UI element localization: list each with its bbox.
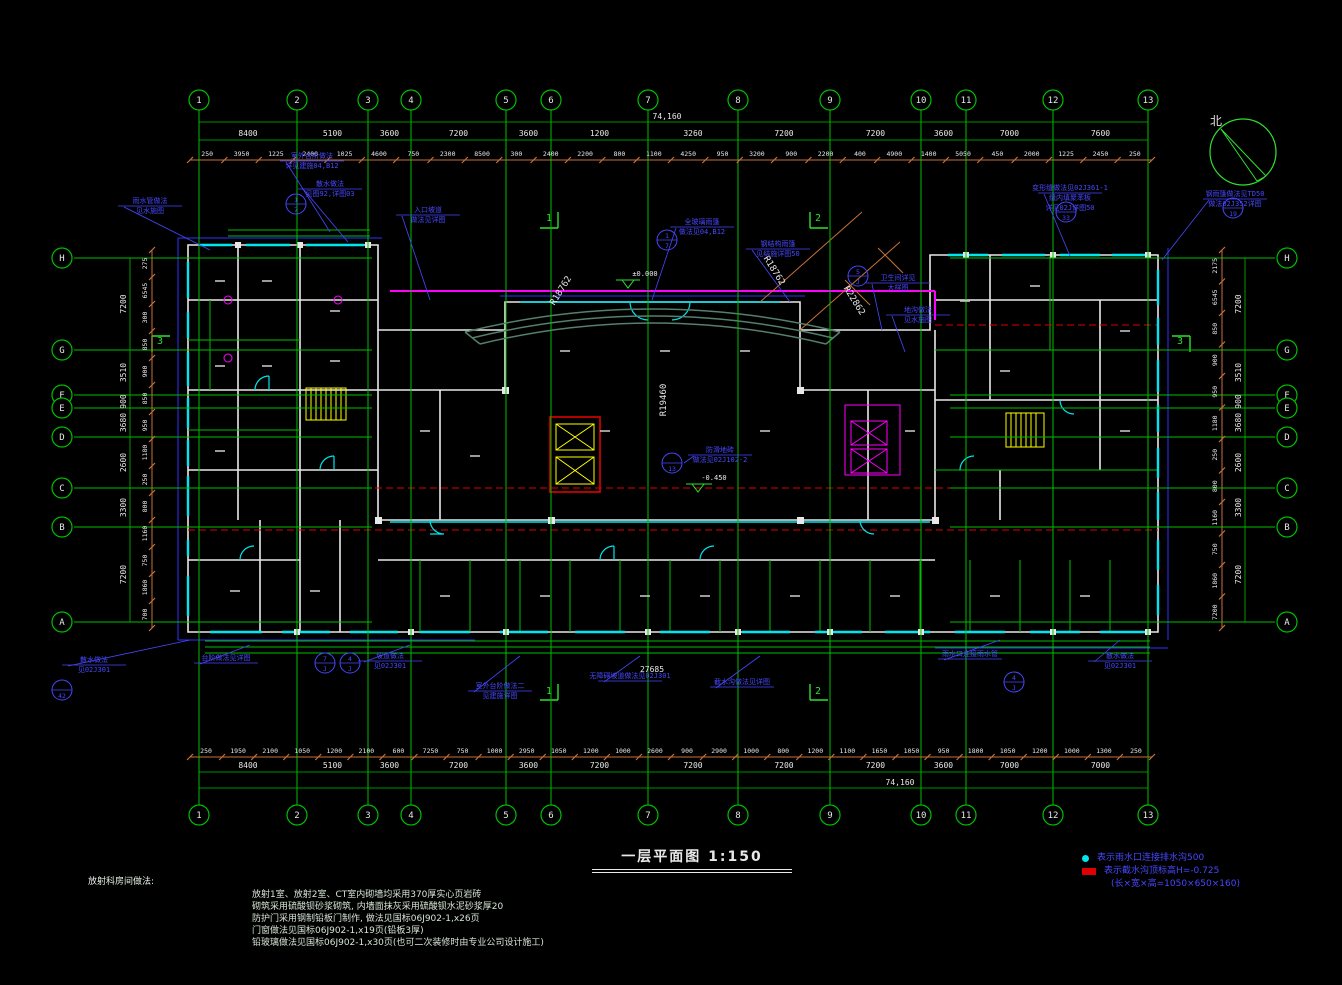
plan-text: 1 (546, 213, 552, 224)
axis-bubble-label: 9 (827, 96, 832, 106)
sub-dim: 900 (141, 366, 149, 378)
sub-dim: 2100 (262, 747, 278, 755)
axis-bubble-label: B (59, 523, 64, 533)
axis-bubble-label: 5 (503, 811, 508, 821)
sub-dim: 1200 (1032, 747, 1048, 755)
axis-bubble-label: G (1284, 346, 1289, 356)
dim-top: 8400 (238, 129, 257, 138)
dim-top: 7000 (1000, 129, 1019, 138)
partitions-layer (188, 230, 1158, 653)
dim-right: 3300 (1234, 498, 1243, 517)
callout-text: 卫生间详见 (881, 273, 916, 282)
plan-text: R19460 (659, 384, 669, 417)
detail-bubble-bottom: J (1012, 684, 1016, 692)
sub-dim: 4900 (886, 150, 902, 158)
dim-total-top: 74,160 (653, 112, 682, 121)
dim-left: 7200 (119, 565, 128, 584)
callout-text: 散水做法 (80, 655, 108, 664)
legend-item: 表示截水沟顶标高H=-0.725 (1082, 865, 1240, 878)
sub-dim: 750 (141, 555, 149, 567)
callout-text: 无障碍坡道做法见02J301 (589, 671, 670, 680)
callout-text: 钢结构雨篷 (761, 239, 796, 248)
dim-bottom: 7200 (449, 761, 468, 770)
dim-top: 7200 (774, 129, 793, 138)
plan-text: ±0.000 (632, 270, 657, 278)
sub-dim: 2100 (359, 747, 375, 755)
sub-dim: 2200 (818, 150, 834, 158)
plan-text: 3 (157, 336, 163, 347)
callout-text: 做法02J352详图 (1208, 199, 1261, 208)
sub-dim: 1000 (1064, 747, 1080, 755)
sub-dim: 3950 (234, 150, 250, 158)
sub-dim: 250 (1129, 150, 1141, 158)
sub-dim: 450 (992, 150, 1004, 158)
dim-left: 7200 (119, 294, 128, 313)
dim-top: 1200 (590, 129, 609, 138)
sub-dim: 1200 (583, 747, 599, 755)
columns-layer (235, 242, 1151, 635)
dim-left: 3680 (119, 413, 128, 432)
detail-bubble-top: 7 (323, 655, 327, 663)
sub-dim: 1200 (807, 747, 823, 755)
plan-text: 1 (546, 686, 552, 697)
dim-bottom: 7200 (683, 761, 702, 770)
sub-dim: 250 (200, 747, 212, 755)
axis-bubble-label: 2 (294, 811, 299, 821)
callout-text: 台阶做法见详图 (202, 653, 251, 662)
sub-dim: 1050 (904, 747, 920, 755)
sub-dim: 1025 (337, 150, 353, 158)
axis-bubble-label: A (59, 618, 65, 628)
callout-text: 做法见04,B12 (679, 227, 725, 236)
callout-text: 全玻璃雨篷 (685, 217, 720, 226)
sub-dim: 850 (141, 393, 149, 405)
fixtures-layer (224, 291, 935, 475)
sub-dim: 6545 (141, 283, 149, 299)
dim-bottom: 8400 (238, 761, 257, 770)
diagonal-dims-layer (760, 212, 903, 330)
sub-dim: 800 (1211, 480, 1219, 492)
sub-dim: 250 (141, 474, 149, 486)
sub-dim: 2450 (1093, 150, 1109, 158)
sub-dim: 2300 (440, 150, 456, 158)
sub-dim: 900 (681, 747, 693, 755)
axis-bubble-label: 7 (645, 96, 650, 106)
sub-dim: 2175 (1211, 258, 1219, 274)
sub-dim: 2600 (647, 747, 663, 755)
notes-heading: 放射科房间做法: (88, 876, 544, 888)
sub-dim: 7250 (423, 747, 439, 755)
axis-bubble-label: 6 (548, 96, 553, 106)
callout-text: 坡道做法 (376, 651, 404, 660)
callout-text: 室外台阶做法二 (476, 681, 525, 690)
sub-dim: 1000 (615, 747, 631, 755)
sub-dim: 250 (201, 150, 213, 158)
axis-bubble-label: 12 (1048, 96, 1059, 106)
detail-bubble-bottom: J (323, 665, 327, 673)
sub-dim: 1050 (1000, 747, 1016, 755)
sub-dim: 950 (141, 420, 149, 432)
axis-bubble-label: 8 (735, 811, 740, 821)
axis-bubble-label: 12 (1048, 811, 1059, 821)
callout-text: 见水施图 (136, 206, 164, 215)
plan-text: 2 (815, 686, 821, 697)
dim-top: 7600 (1091, 129, 1110, 138)
sub-dim: 600 (393, 747, 405, 755)
legend-text: 表示截水沟顶标高H=-0.725 (1104, 865, 1219, 878)
sub-dim: 4250 (680, 150, 696, 158)
axis-bubble-label: 13 (1143, 811, 1154, 821)
sub-dim: 2950 (519, 747, 535, 755)
dim-right: 7200 (1234, 565, 1243, 584)
axis-bubble-label: H (1284, 254, 1289, 264)
notes-lines: 放射1室、放射2室、CT室内砌墙均采用370厚实心页岩砖砌筑采用硫酸钡砂浆砌筑,… (88, 889, 544, 949)
callout-text: 钢雨篷做法见TD50 (1206, 189, 1265, 198)
dim-right: 2600 (1234, 453, 1243, 472)
callout-text: 散水做法 (1106, 651, 1134, 660)
axis-bubble-label: C (1284, 484, 1289, 494)
north-arrow: 北 (1210, 114, 1276, 185)
dim-bottom: 3600 (519, 761, 538, 770)
axis-bubble-label: 8 (735, 96, 740, 106)
sub-dim: 300 (141, 312, 149, 324)
legend-text2: (长×宽×高=1050×650×160) (1111, 878, 1240, 891)
sub-dim: 1860 (141, 580, 149, 596)
sub-dim: 900 (785, 150, 797, 158)
dim-bottom: 5100 (323, 761, 342, 770)
sub-dim: 750 (407, 150, 419, 158)
sub-dim: 4600 (371, 150, 387, 158)
dim-bottom: 7200 (866, 761, 885, 770)
sub-dim: 1100 (646, 150, 662, 158)
axis-bubble-label: E (59, 404, 64, 414)
sub-dim: 750 (1211, 543, 1219, 555)
callout-text: 见结施详图50 (756, 249, 799, 258)
sub-dim: 1225 (268, 150, 284, 158)
sub-dim: 1180 (141, 445, 149, 461)
callout-text: 详见建施04,B12 (285, 161, 338, 170)
dim-bottom: 7200 (774, 761, 793, 770)
windows-layer (188, 245, 1158, 632)
detail-bubble-top: 1 (665, 232, 669, 240)
axis-bubble-label: 11 (961, 96, 972, 106)
axis-bubble-label: 1 (196, 96, 201, 106)
sub-dim: 800 (614, 150, 626, 158)
callout-text: 变形缝做法见02J361-1 (1032, 183, 1108, 192)
sub-dim: 1200 (326, 747, 342, 755)
dim-top: 3600 (519, 129, 538, 138)
callout-text: 做法见详图 (411, 215, 446, 224)
axis-bubble-label: H (59, 254, 64, 264)
sub-dim: 250 (1211, 449, 1219, 461)
axis-bubble-label: 3 (365, 811, 370, 821)
detail-bubble-top: 5 (856, 268, 860, 276)
axis-bubble-label: 11 (961, 811, 972, 821)
detail-bubble-bottom: J (856, 278, 860, 286)
dim-top: 3600 (934, 129, 953, 138)
callout-text: 入口坡道 (414, 205, 442, 214)
legend-block: 表示雨水口连接排水沟500表示截水沟顶标高H=-0.725(长×宽×高=1050… (1082, 852, 1240, 891)
sub-dim: 750 (457, 747, 469, 755)
legend-symbol-circle (1082, 855, 1089, 862)
plan-text: R22862 (841, 285, 867, 318)
canopy-layer (465, 309, 840, 344)
sub-dim: 950 (717, 150, 729, 158)
callout-text: 见02J301 (1104, 662, 1136, 670)
axis-bubble-label: B (1284, 523, 1289, 533)
axis-bubble-label: 9 (827, 811, 832, 821)
detail-bubble-bottom: 33 (1062, 214, 1070, 222)
sub-dim: 2900 (711, 747, 727, 755)
axis-bubble-label: 4 (408, 811, 413, 821)
sub-dim: 3200 (749, 150, 765, 158)
notes-block: 放射科房间做法: 放射1室、放射2室、CT室内砌墙均采用370厚实心页岩砖砌筑采… (88, 876, 544, 949)
floorplan-drawing: 北 1122334455667788991010111112121313HHGG… (0, 0, 1342, 985)
notes-line: 防护门采用钢制铅板门制作, 做法见国标06J902-1,x26页 (252, 913, 544, 925)
legend-text: 表示雨水口连接排水沟500 (1097, 852, 1204, 865)
axis-bubble-label: 10 (916, 96, 927, 106)
sub-dim: 400 (854, 150, 866, 158)
callout-text: 见建施详图 (483, 691, 518, 700)
axis-bubble-label: 13 (1143, 96, 1154, 106)
detail-bubble-bottom: 7 (294, 206, 298, 214)
sub-dim: 2200 (577, 150, 593, 158)
axis-bubble-label: E (1284, 404, 1289, 414)
walls-layer (188, 245, 1158, 632)
cad-canvas: { "title": {"text": "一层平面图 1:150"}, "nor… (0, 0, 1342, 985)
sub-dim: 800 (777, 747, 789, 755)
legend-symbol-rect (1082, 868, 1096, 875)
dim-bottom: 7000 (1091, 761, 1110, 770)
sub-dim: 1050 (551, 747, 567, 755)
sub-dim: 1225 (1058, 150, 1074, 158)
sub-dim: 950 (938, 747, 950, 755)
sub-dim: 1100 (840, 747, 856, 755)
sub-dim: 1000 (743, 747, 759, 755)
dim-right: 3510 (1234, 363, 1243, 382)
detail-bubble-bottom: J (348, 665, 352, 673)
sub-dim: 1860 (1211, 573, 1219, 589)
axis-bubble-label: 2 (294, 96, 299, 106)
sub-dim: 800 (141, 501, 149, 513)
sub-dim: 700 (141, 609, 149, 621)
sub-dim: 5050 (955, 150, 971, 158)
sub-dim: 2400 (543, 150, 559, 158)
detail-bubble-bottom: 42 (58, 692, 66, 700)
callout-text: 详见02J详图50 (1045, 203, 1094, 212)
axis-bubble-label: G (59, 346, 64, 356)
axis-bubble-label: C (59, 484, 64, 494)
sub-dim: 1300 (1096, 747, 1112, 755)
sub-dim: 275 (141, 258, 149, 270)
room-label-specks (215, 280, 1130, 597)
notes-line: 门窗做法见国标06J902-1,x19页(铅板3厚) (252, 925, 544, 937)
detail-bubble-bottom: 13 (668, 465, 676, 473)
sub-dim: 1950 (230, 747, 246, 755)
callout-text: 散水做法 (316, 179, 344, 188)
dim-left: 900 (119, 394, 128, 409)
sub-dim: 950 (1211, 386, 1219, 398)
sub-dim: 1050 (294, 747, 310, 755)
sub-dim: 1160 (141, 526, 149, 542)
dim-right: 7200 (1234, 294, 1243, 313)
drawing-title: 一层平面图 1:150 (592, 846, 792, 873)
sub-dim: 1650 (872, 747, 888, 755)
sub-dim: 900 (1211, 354, 1219, 366)
dim-bottom: 3600 (380, 761, 399, 770)
sub-dim: 1160 (1211, 510, 1219, 526)
axis-bubble-label: D (1284, 433, 1289, 443)
callout-text: 防滑地砖 (706, 445, 734, 454)
axis-bubble-label: 4 (408, 96, 413, 106)
notes-line: 放射1室、放射2室、CT室内砌墙均采用370厚实心页岩砖 (252, 889, 544, 901)
callout-text: 见图92,详图03 (305, 189, 354, 198)
axis-bubble-label: 5 (503, 96, 508, 106)
dim-top: 7200 (449, 129, 468, 138)
axis-bubble-label: 6 (548, 811, 553, 821)
callouts-layer: 雨水管做法见水施图室外台阶做法详见建施04,B12散水做法见图92,详图03入口… (52, 151, 1267, 700)
detail-bubble-top: 4 (1012, 674, 1016, 682)
sub-dim: 2000 (1024, 150, 1040, 158)
callout-text: 大样图 (888, 283, 909, 292)
dim-bottom: 3600 (934, 761, 953, 770)
callout-text: 缝内填聚苯板 (1049, 193, 1091, 202)
dim-top: 3260 (683, 129, 702, 138)
sub-dim: 1000 (487, 747, 503, 755)
detail-bubble-top: 1 (294, 196, 298, 204)
sub-dim: 300 (511, 150, 523, 158)
axis-bubble-label: 7 (645, 811, 650, 821)
dim-bottom: 7200 (590, 761, 609, 770)
dim-total-bottom: 74,160 (886, 778, 915, 787)
sub-dim: 1400 (921, 150, 937, 158)
dim-top: 5100 (323, 129, 342, 138)
dim-top: 3600 (380, 129, 399, 138)
dim-right: 3680 (1234, 413, 1243, 432)
dim-top: 7200 (866, 129, 885, 138)
callout-text: 地沟做法 (904, 305, 932, 314)
dim-right: 900 (1234, 394, 1243, 409)
callout-text: 见02J301 (78, 666, 110, 674)
plan-text: 2 (815, 213, 821, 224)
sub-dim: 1800 (968, 747, 984, 755)
plan-text: 3 (1177, 336, 1183, 347)
callout-text: 见02J301 (374, 662, 406, 670)
callout-text: 做法见02J102-2 (693, 455, 748, 464)
sub-dim: 850 (141, 339, 149, 351)
callout-text: 截水沟做法见详图 (714, 677, 770, 686)
sub-dim: 250 (1130, 747, 1142, 755)
dim-left: 3510 (119, 363, 128, 382)
notes-line: 砌筑采用硫酸钡砂浆砌筑, 内墙面抹灰采用硫酸钡水泥砂浆厚20 (252, 901, 544, 913)
detail-bubble-bottom: 7 (665, 242, 669, 250)
axis-bubble-label: A (1284, 618, 1290, 628)
detail-bubble-top: 4 (348, 655, 352, 663)
sub-dim: 6545 (1211, 289, 1219, 305)
callout-text: 见水施图 (904, 315, 932, 324)
plan-text: -0.450 (701, 474, 726, 482)
callout-text: 雨水管做法 (133, 196, 168, 205)
dim-left: 3300 (119, 498, 128, 517)
plan-text: R18762 (761, 255, 787, 288)
sub-dim: 850 (1211, 323, 1219, 335)
axis-bubble-label: D (59, 433, 64, 443)
sub-dim: 7200 (1211, 604, 1219, 620)
sub-dim: 8500 (474, 150, 490, 158)
axis-bubble-label: 1 (196, 811, 201, 821)
legend-item: 表示雨水口连接排水沟500 (1082, 852, 1240, 865)
north-label: 北 (1210, 114, 1222, 128)
axis-bubble-label: 10 (916, 811, 927, 821)
dim-left: 2600 (119, 453, 128, 472)
sub-dim: 1180 (1211, 415, 1219, 431)
detail-bubble-bottom: 19 (1229, 210, 1237, 218)
callout-text: 室外台阶做法 (291, 151, 333, 160)
dim-bottom: 7000 (1000, 761, 1019, 770)
axis-bubble-label: 3 (365, 96, 370, 106)
callout-text: 雨水口连接雨水管 (942, 649, 998, 658)
notes-line: 铅玻璃做法见国标06J902-1,x30页(也可二次装修时由专业公司设计施工) (252, 937, 544, 949)
